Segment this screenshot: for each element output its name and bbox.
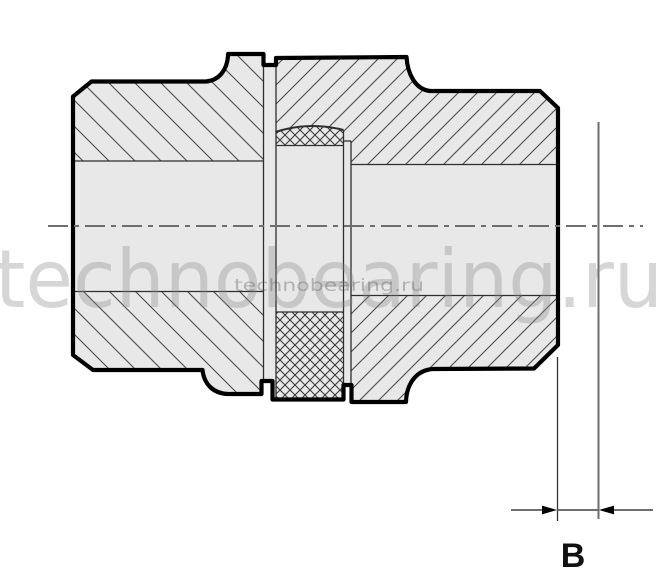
arrowhead-left [542,506,557,515]
arrowhead-right [599,506,614,515]
dimension-label-B: B [561,537,586,575]
drawing-canvas: B technobearing.ru technobearing.ru [0,0,659,580]
watermark-small: technobearing.ru [234,276,424,296]
coupling-section-drawing: B technobearing.ru technobearing.ru [0,0,659,580]
